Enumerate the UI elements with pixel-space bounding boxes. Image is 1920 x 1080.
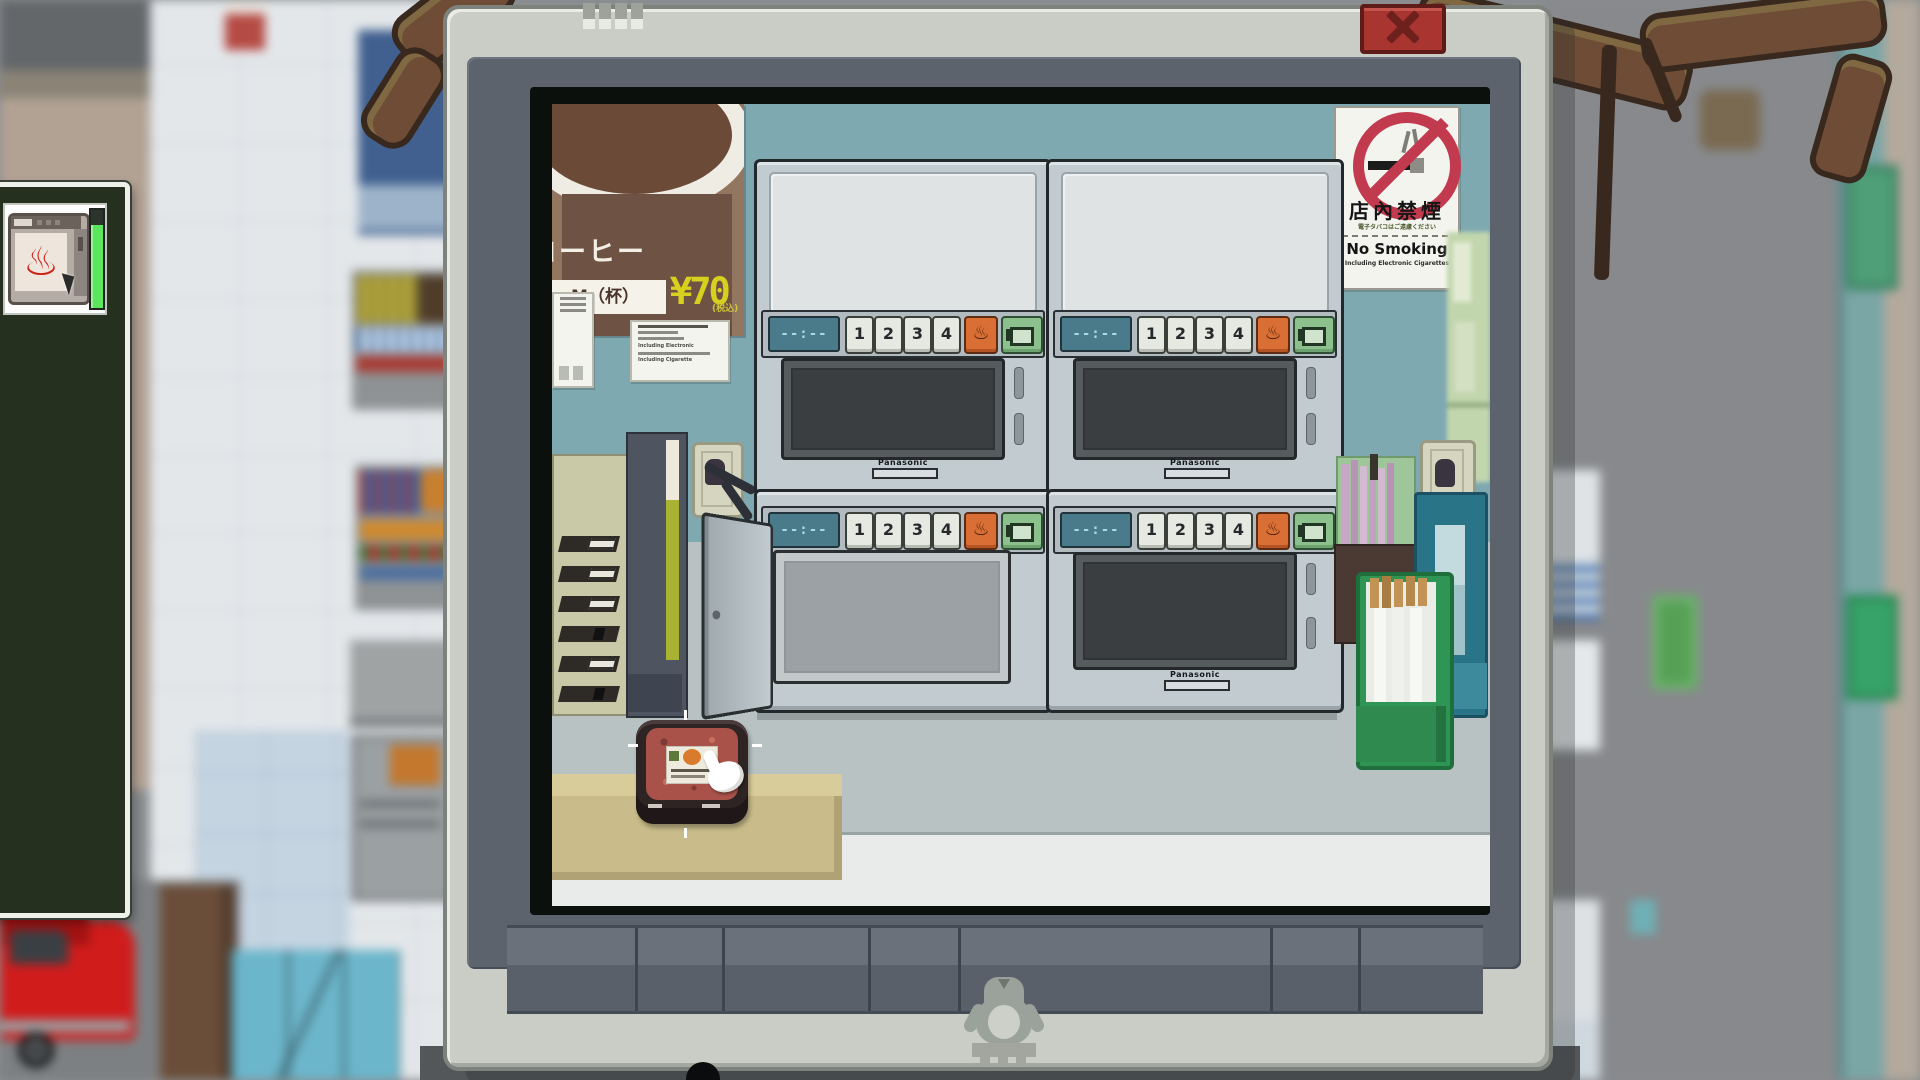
preset-button-4[interactable]: 4 — [1224, 316, 1253, 354]
microwave-bottom-right: --:-- 1 2 3 4 ♨ Panasonic — [1046, 489, 1344, 713]
notice-line-2: Including Cigarette — [638, 357, 728, 363]
wipes-dispenser — [626, 432, 688, 718]
timer-display: --:-- — [768, 512, 840, 548]
close-button[interactable] — [1360, 4, 1446, 54]
microwave-control-panel: --:-- 1 2 3 4 ♨ — [761, 310, 1045, 358]
lower-panel-top — [507, 925, 1483, 968]
heat-button[interactable]: ♨ — [964, 316, 998, 354]
poster-tax-label: (税込) — [712, 304, 738, 314]
heat-button[interactable]: ♨ — [1256, 316, 1290, 354]
preset-button-3[interactable]: 3 — [903, 512, 932, 550]
preset-button-2[interactable]: 2 — [1166, 512, 1195, 550]
microwave-top-left: --:-- 1 2 3 4 ♨ Panasonic — [754, 159, 1052, 497]
microwave-control-panel: --:-- 1 2 3 4 ♨ — [1053, 506, 1337, 554]
preset-button-3[interactable]: 3 — [1195, 316, 1224, 354]
timer-display: --:-- — [768, 316, 840, 352]
no-smoking-sub: 電子タバコはご遠慮ください — [1336, 224, 1458, 232]
no-smoking-en-sub: Including Electronic Cigarettes — [1336, 260, 1458, 268]
brand-label: Panasonic — [757, 458, 1049, 468]
preset-button-1[interactable]: 1 — [1137, 316, 1166, 354]
preset-button-2[interactable]: 2 — [874, 512, 903, 550]
door-open-button[interactable] — [1293, 512, 1335, 550]
door-open-button[interactable] — [1293, 316, 1335, 354]
hud-task-panel[interactable]: ♨ — [0, 182, 130, 918]
preset-button-1[interactable]: 1 — [1137, 512, 1166, 550]
game-screen: ♨ — [0, 0, 1920, 1080]
door-open-button[interactable] — [1001, 316, 1043, 354]
brand-label: Panasonic — [1049, 458, 1341, 468]
selection-tick — [628, 744, 638, 747]
door-open-icon — [1010, 327, 1034, 346]
station-inner-panel: コーヒー M（杯） ¥70 (税込) Including Electroni — [467, 57, 1521, 969]
muddler-sticks — [1340, 460, 1408, 548]
preset-button-1[interactable]: 1 — [845, 316, 874, 354]
preset-button-3[interactable]: 3 — [1195, 512, 1224, 550]
task-progress-bar — [89, 208, 105, 310]
preset-button-2[interactable]: 2 — [874, 316, 903, 354]
microwave-control-panel: --:-- 1 2 3 4 ♨ — [761, 506, 1045, 554]
preset-button-4[interactable]: 4 — [932, 512, 961, 550]
microwave-door-window[interactable] — [781, 358, 1005, 460]
poster-title: コーヒー — [552, 238, 730, 268]
penguin-logo — [972, 977, 1036, 1065]
microwave-upper-door[interactable] — [769, 172, 1037, 314]
no-smoking-en: No Smoking — [1336, 240, 1458, 258]
preset-button-3[interactable]: 3 — [903, 316, 932, 354]
no-smoking-sign: 店內禁煙 電子タバコはご遠慮ください No Smoking Including … — [1334, 106, 1460, 290]
notice-line-1: Including Electronic — [638, 343, 728, 349]
timer-display: --:-- — [1060, 512, 1132, 548]
door-open-icon — [1302, 327, 1326, 346]
preset-button-1[interactable]: 1 — [845, 512, 874, 550]
door-open-icon — [1010, 523, 1034, 542]
preset-button-2[interactable]: 2 — [1166, 316, 1195, 354]
microwave-open-door[interactable] — [702, 512, 773, 720]
hud-task-slot[interactable]: ♨ — [3, 203, 107, 315]
timer-display: --:-- — [1060, 316, 1132, 352]
small-wall-sign — [552, 292, 594, 388]
microwave-station-window: コーヒー M（杯） ¥70 (税込) Including Electroni — [443, 5, 1553, 1071]
microwave-bottom-left: --:-- 1 2 3 4 ♨ — [754, 489, 1052, 713]
utensil-box — [1356, 572, 1454, 770]
heat-button[interactable]: ♨ — [1256, 512, 1290, 550]
microwave-door-window[interactable] — [1073, 552, 1297, 670]
microwave-scene: コーヒー M（杯） ¥70 (税込) Including Electroni — [552, 104, 1490, 906]
hot-food-icon: ♨ — [15, 233, 67, 291]
microwave-control-panel: --:-- 1 2 3 4 ♨ — [1053, 310, 1337, 358]
microwave-cavity-open[interactable] — [773, 550, 1011, 684]
preset-button-4[interactable]: 4 — [1224, 512, 1253, 550]
cutlery-cabinet — [552, 454, 628, 716]
door-open-button[interactable] — [1001, 512, 1043, 550]
notice-sign: Including Electronic Including Cigarette — [630, 320, 730, 382]
heat-button[interactable]: ♨ — [964, 512, 998, 550]
preset-button-4[interactable]: 4 — [932, 316, 961, 354]
door-open-icon — [1302, 523, 1326, 542]
microwave-top-right: --:-- 1 2 3 4 ♨ Panasonic — [1046, 159, 1344, 497]
brand-label: Panasonic — [1049, 670, 1341, 680]
no-smoking-kanji: 店內禁煙 — [1336, 200, 1458, 222]
microwave-door-window[interactable] — [1073, 358, 1297, 460]
microwave-upper-door[interactable] — [1061, 172, 1329, 314]
